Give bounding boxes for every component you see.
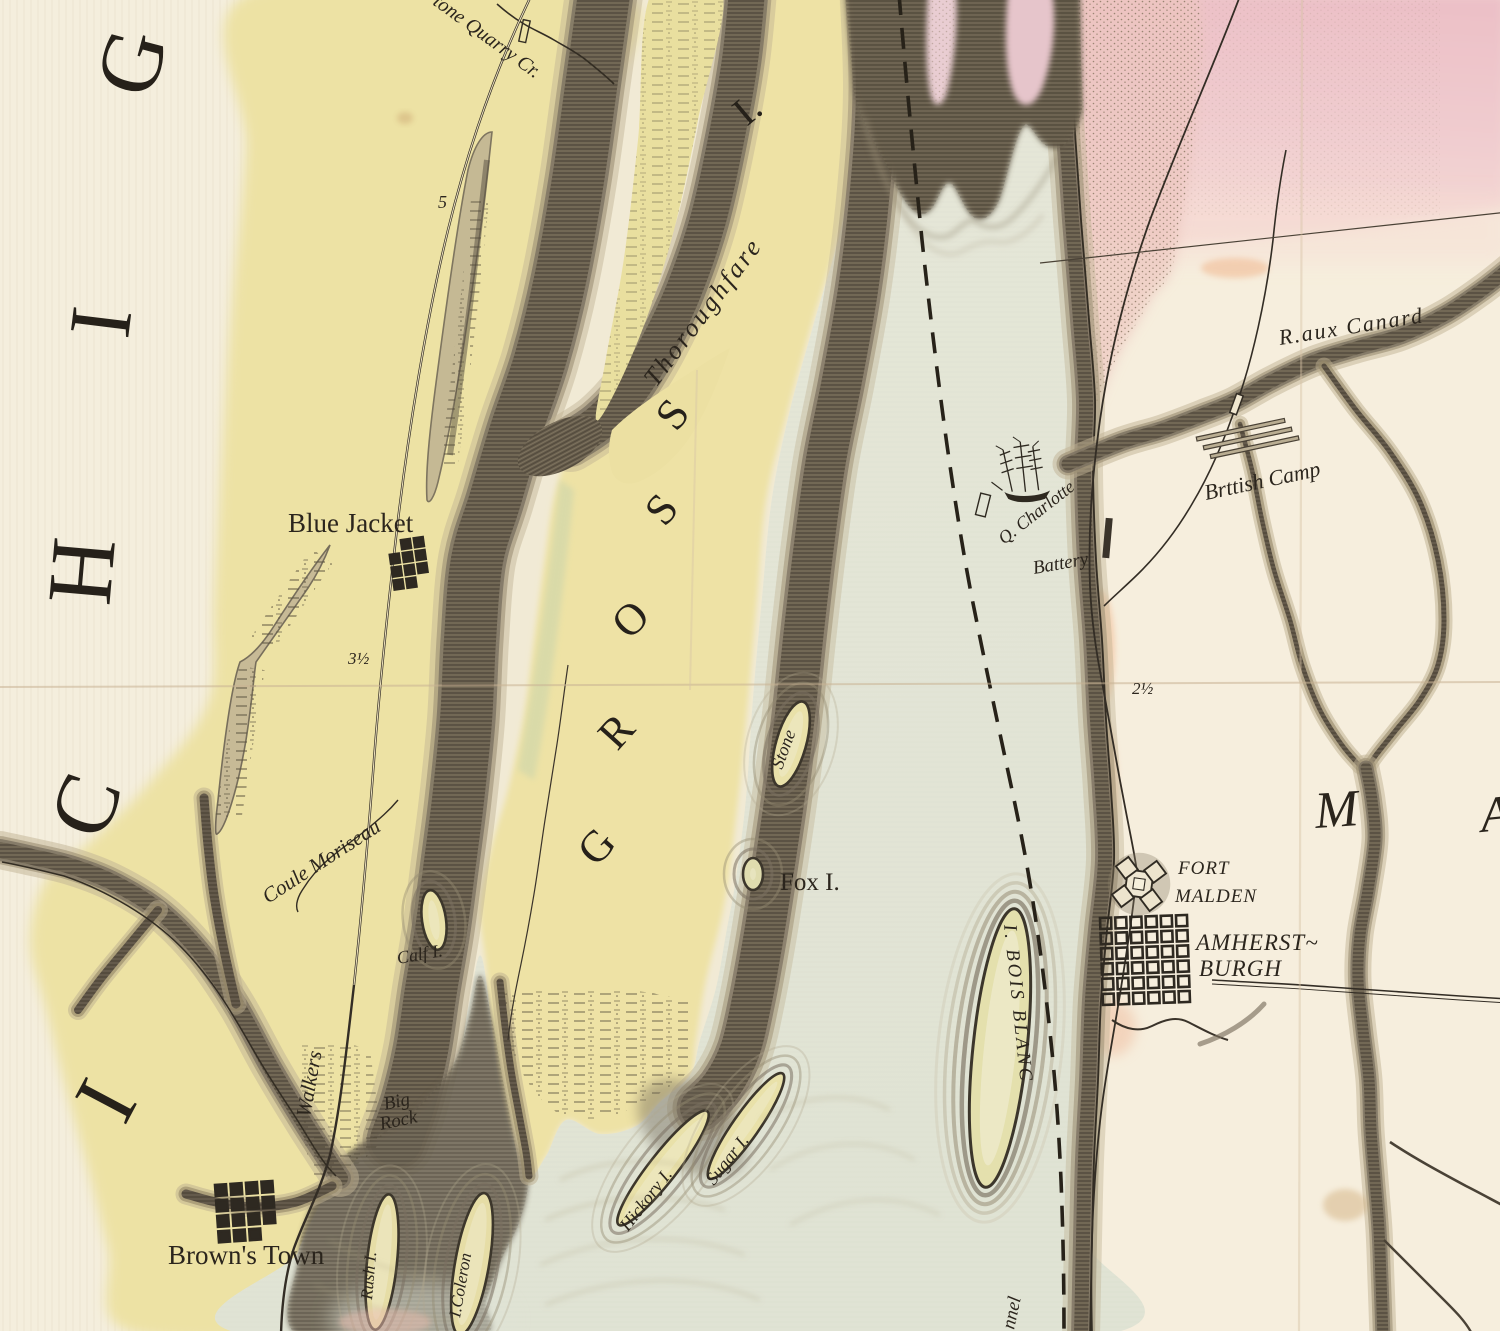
svg-text:MALDEN: MALDEN bbox=[1174, 886, 1257, 907]
svg-text:AMHERST~: AMHERST~ bbox=[1194, 930, 1319, 955]
svg-text:M: M bbox=[1312, 780, 1363, 840]
svg-text:Brown's Town: Brown's Town bbox=[168, 1240, 325, 1270]
svg-text:Fox I.: Fox I. bbox=[780, 869, 840, 896]
svg-text:3½: 3½ bbox=[347, 649, 370, 668]
svg-text:H: H bbox=[28, 533, 135, 608]
svg-text:5: 5 bbox=[438, 192, 447, 212]
svg-text:FORT: FORT bbox=[1177, 858, 1230, 879]
svg-text:2½: 2½ bbox=[1132, 679, 1154, 698]
svg-text:Blue Jacket: Blue Jacket bbox=[288, 508, 414, 538]
svg-text:BURGH: BURGH bbox=[1199, 956, 1282, 981]
